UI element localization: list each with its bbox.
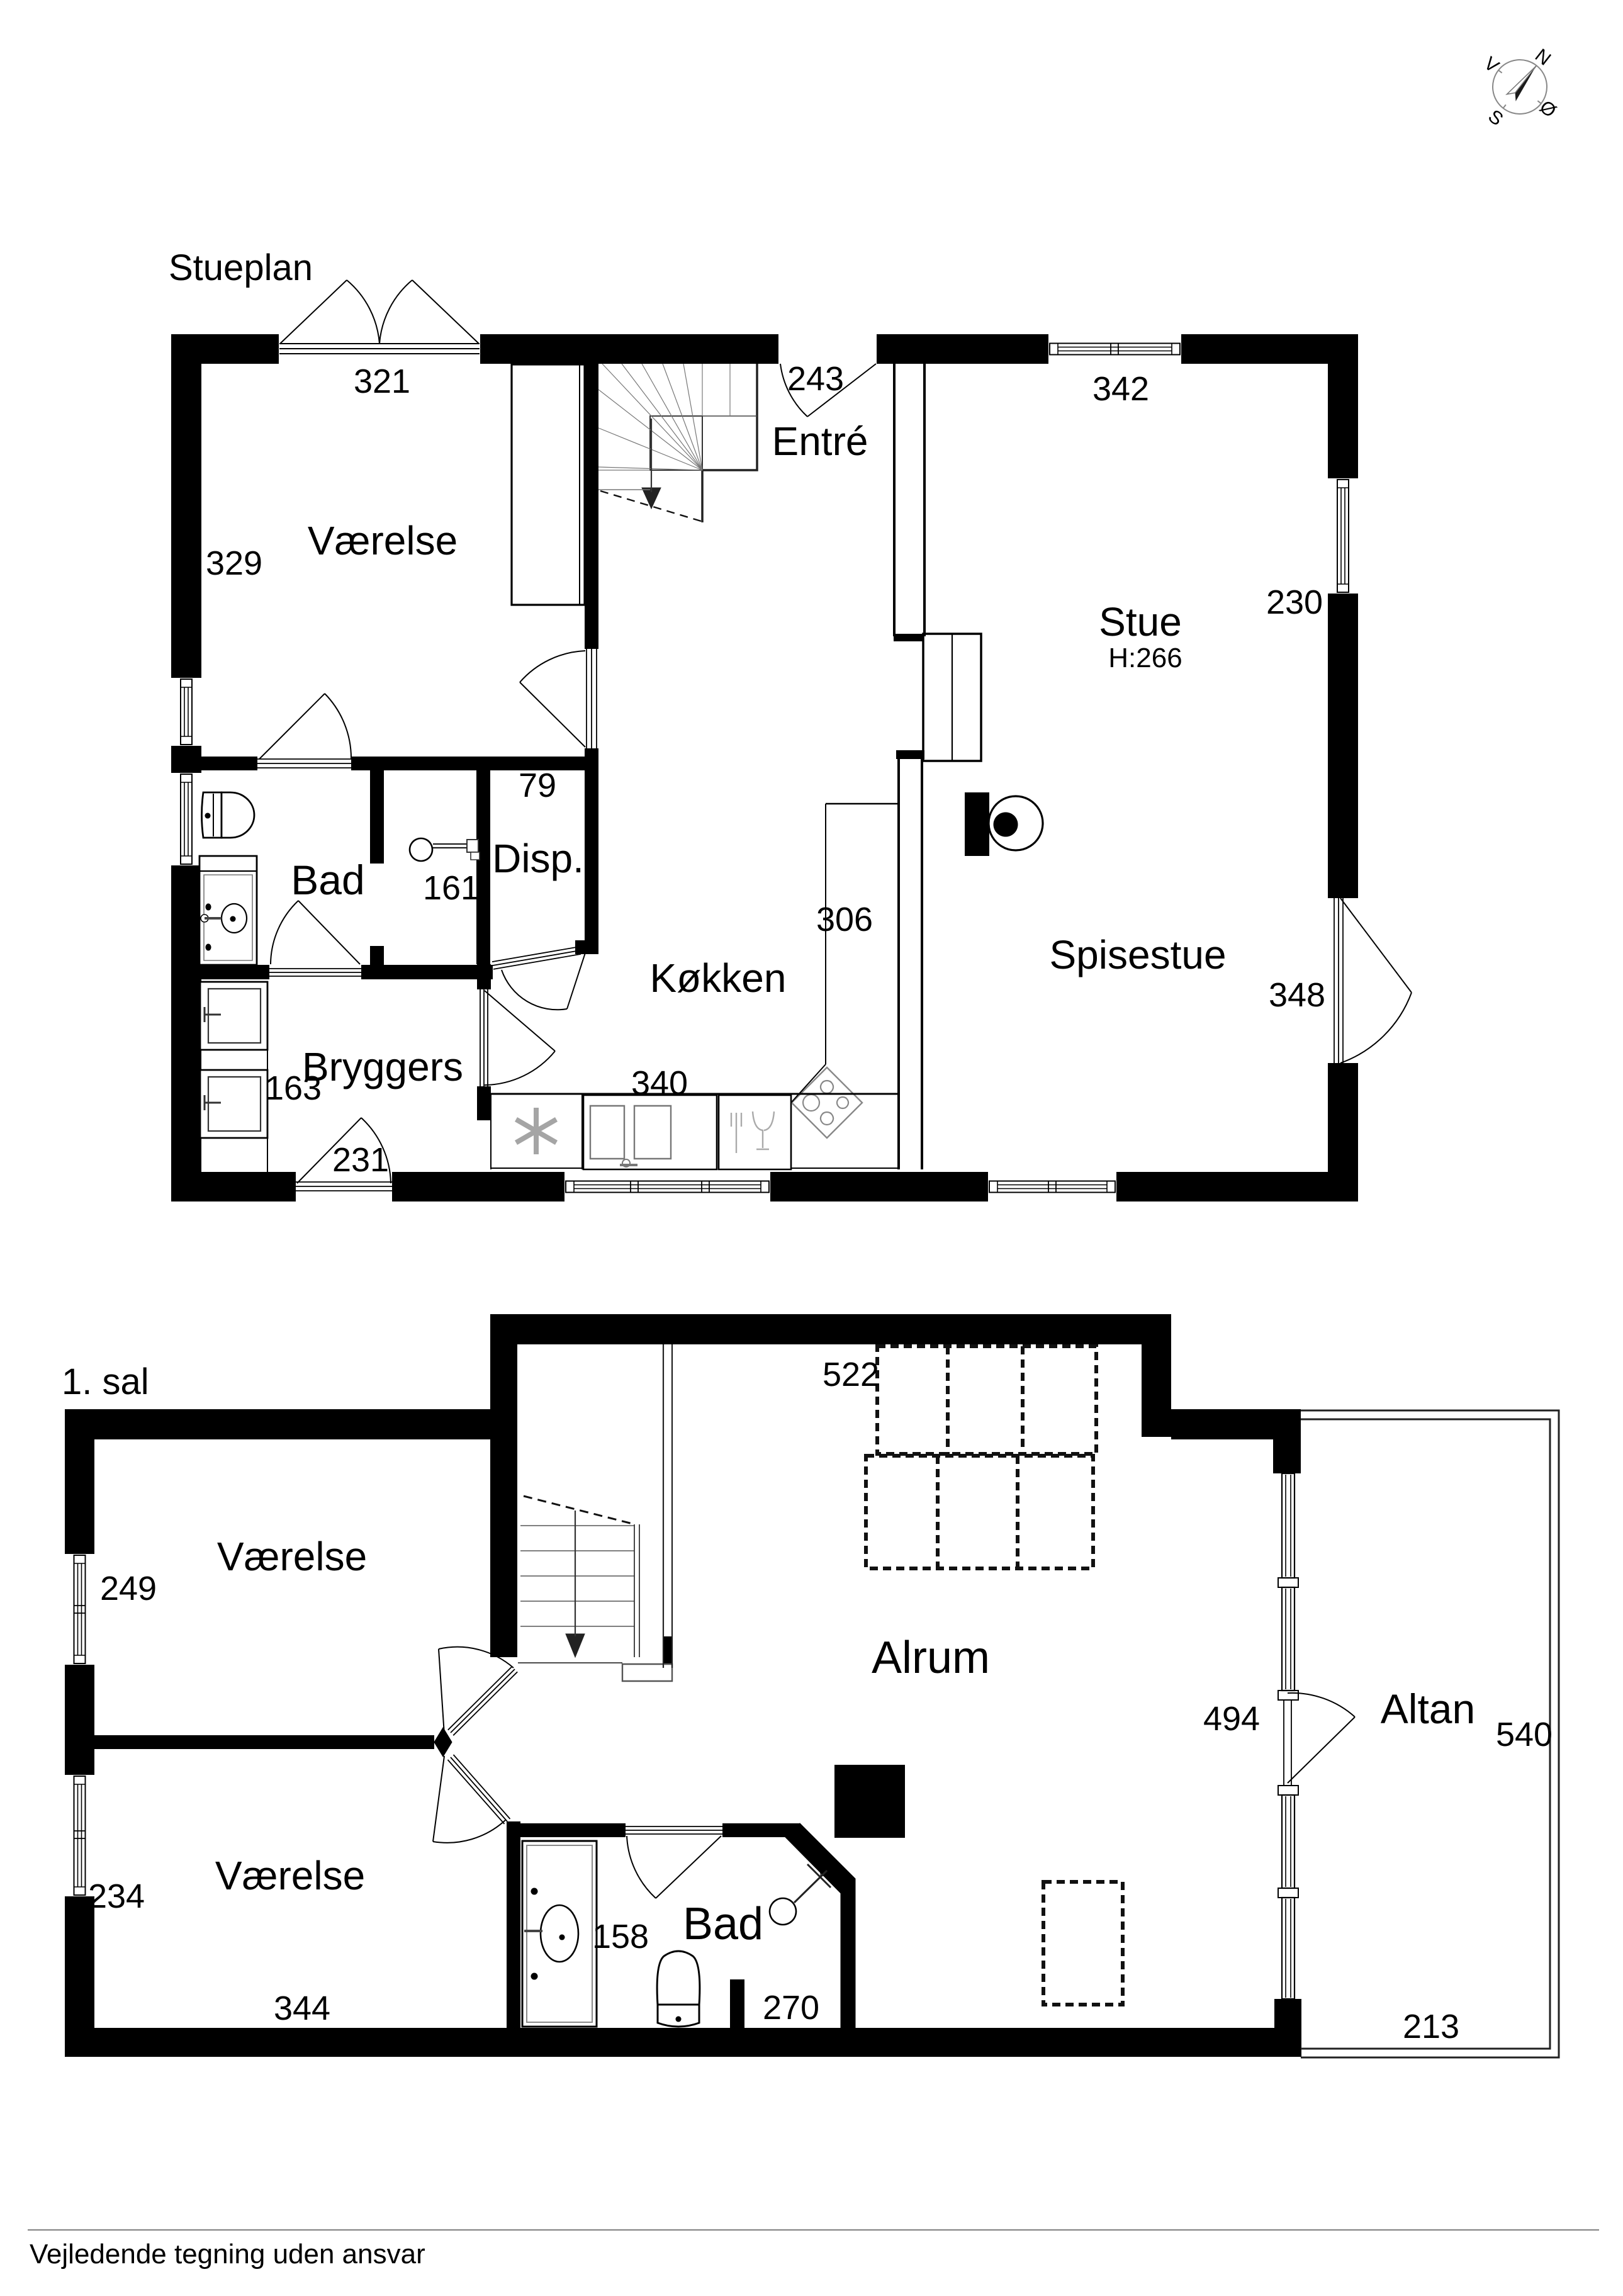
svg-text:Stue: Stue [1099, 599, 1182, 644]
svg-text:Bad: Bad [683, 1899, 763, 1949]
svg-text:306: 306 [816, 901, 873, 938]
svg-text:158: 158 [592, 1918, 649, 1956]
svg-text:522: 522 [823, 1356, 879, 1393]
svg-text:Værelse: Værelse [217, 1534, 367, 1579]
svg-text:249: 249 [100, 1570, 157, 1607]
svg-text:Vejledende tegning uden ansvar: Vejledende tegning uden ansvar [30, 2239, 425, 2270]
svg-text:Alrum: Alrum [872, 1633, 990, 1683]
svg-text:Entré: Entré [772, 419, 868, 464]
svg-text:1. sal: 1. sal [62, 1361, 149, 1402]
svg-text:340: 340 [631, 1064, 688, 1102]
svg-text:79: 79 [519, 767, 556, 804]
svg-text:Bryggers: Bryggers [302, 1044, 463, 1089]
svg-text:Bad: Bad [291, 857, 364, 903]
svg-text:Stueplan: Stueplan [169, 247, 313, 288]
svg-text:161: 161 [423, 869, 480, 907]
svg-text:213: 213 [1403, 2008, 1459, 2046]
svg-text:H:266: H:266 [1108, 643, 1182, 673]
svg-text:Spisestue: Spisestue [1049, 932, 1226, 977]
svg-text:Værelse: Værelse [215, 1853, 365, 1898]
svg-text:Køkken: Køkken [650, 955, 787, 1001]
svg-text:230: 230 [1266, 583, 1323, 621]
svg-text:163: 163 [265, 1069, 322, 1107]
svg-text:Disp.: Disp. [492, 836, 584, 881]
svg-text:231: 231 [332, 1141, 389, 1179]
svg-text:344: 344 [274, 1989, 330, 2027]
svg-text:270: 270 [763, 1989, 819, 2027]
svg-text:348: 348 [1269, 976, 1325, 1014]
svg-text:540: 540 [1496, 1716, 1553, 1753]
svg-text:243: 243 [787, 360, 844, 398]
svg-text:342: 342 [1092, 370, 1149, 408]
svg-text:Altan: Altan [1381, 1685, 1475, 1732]
svg-text:494: 494 [1203, 1700, 1260, 1738]
svg-text:234: 234 [88, 1877, 145, 1915]
svg-text:Værelse: Værelse [308, 518, 458, 563]
svg-text:321: 321 [354, 363, 410, 400]
svg-text:329: 329 [206, 544, 262, 582]
